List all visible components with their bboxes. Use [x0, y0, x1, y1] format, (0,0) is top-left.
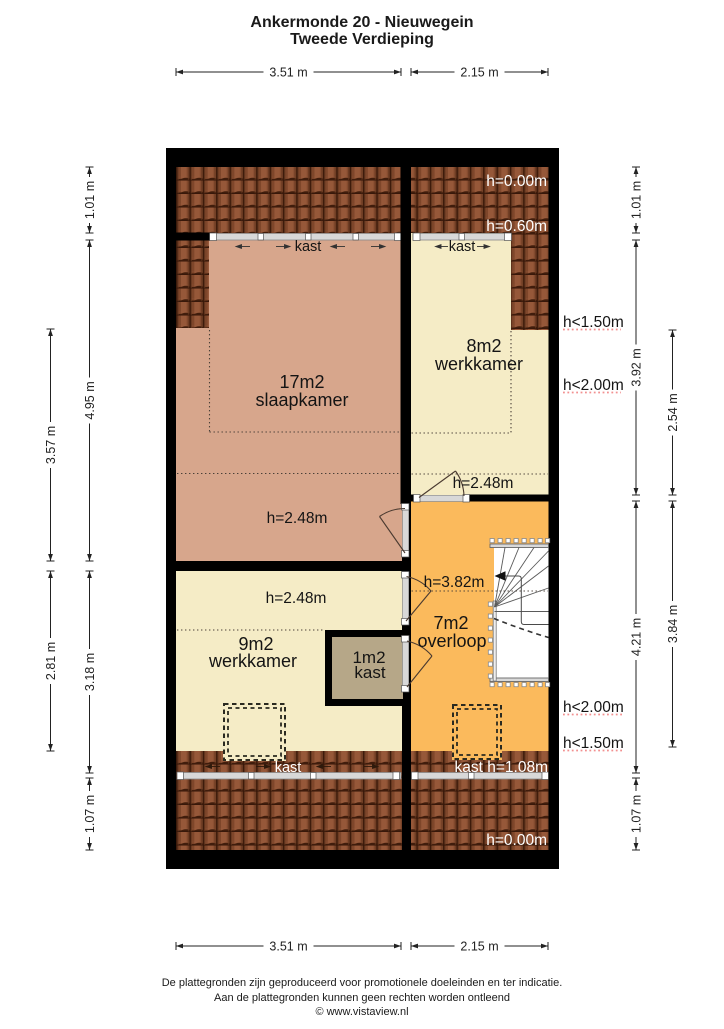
svg-text:h=2.48m: h=2.48m: [266, 590, 327, 607]
svg-text:overloop: overloop: [417, 631, 486, 651]
svg-text:1.01 m: 1.01 m: [83, 181, 97, 219]
svg-text:De plattegronden zijn geproduc: De plattegronden zijn geproduceerd voor …: [162, 977, 563, 989]
svg-text:3.51 m: 3.51 m: [269, 940, 307, 954]
svg-text:7m2: 7m2: [433, 613, 468, 633]
svg-text:kast: kast: [449, 239, 476, 255]
svg-text:kast h=1.08m: kast h=1.08m: [455, 759, 548, 776]
svg-text:Tweede Verdieping: Tweede Verdieping: [290, 31, 434, 48]
svg-text:8m2: 8m2: [466, 336, 501, 356]
svg-text:kast: kast: [354, 663, 385, 682]
svg-text:3.51 m: 3.51 m: [269, 66, 307, 80]
svg-text:17m2: 17m2: [279, 372, 324, 392]
svg-text:4.95 m: 4.95 m: [83, 381, 97, 419]
svg-text:© www.vistaview.nl: © www.vistaview.nl: [315, 1006, 408, 1018]
svg-text:slaapkamer: slaapkamer: [255, 390, 348, 410]
svg-text:2.81 m: 2.81 m: [44, 642, 58, 680]
svg-text:4.21 m: 4.21 m: [630, 618, 644, 656]
svg-text:h<1.50m: h<1.50m: [563, 735, 624, 752]
svg-text:1.07 m: 1.07 m: [83, 795, 97, 833]
svg-text:kast: kast: [275, 760, 302, 776]
svg-text:1.01 m: 1.01 m: [630, 181, 644, 219]
svg-text:Ankermonde 20 - Nieuwegein: Ankermonde 20 - Nieuwegein: [250, 14, 473, 31]
svg-text:h<2.00m: h<2.00m: [563, 377, 624, 394]
svg-text:h=2.48m: h=2.48m: [453, 475, 514, 492]
svg-text:1.07 m: 1.07 m: [630, 795, 644, 833]
svg-text:h=2.48m: h=2.48m: [267, 510, 328, 527]
svg-text:h<1.50m: h<1.50m: [563, 314, 624, 331]
svg-text:h<2.00m: h<2.00m: [563, 699, 624, 716]
svg-text:h=3.82m: h=3.82m: [424, 574, 485, 591]
svg-text:h=0.60m: h=0.60m: [486, 218, 547, 235]
svg-text:3.84 m: 3.84 m: [666, 605, 680, 643]
svg-text:werkkamer: werkkamer: [434, 354, 523, 374]
svg-text:2.15 m: 2.15 m: [460, 940, 498, 954]
svg-text:2.15 m: 2.15 m: [460, 66, 498, 80]
svg-text:h=0.00m: h=0.00m: [486, 173, 547, 190]
svg-text:werkkamer: werkkamer: [208, 651, 297, 671]
svg-text:Aan de plattegronden kunnen ge: Aan de plattegronden kunnen geen rechten…: [214, 992, 510, 1004]
svg-text:h=0.00m: h=0.00m: [486, 832, 547, 849]
svg-text:3.92 m: 3.92 m: [630, 348, 644, 386]
svg-text:3.57 m: 3.57 m: [44, 426, 58, 464]
svg-text:kast: kast: [295, 239, 322, 255]
svg-text:2.54 m: 2.54 m: [666, 393, 680, 431]
svg-text:3.18 m: 3.18 m: [83, 653, 97, 691]
